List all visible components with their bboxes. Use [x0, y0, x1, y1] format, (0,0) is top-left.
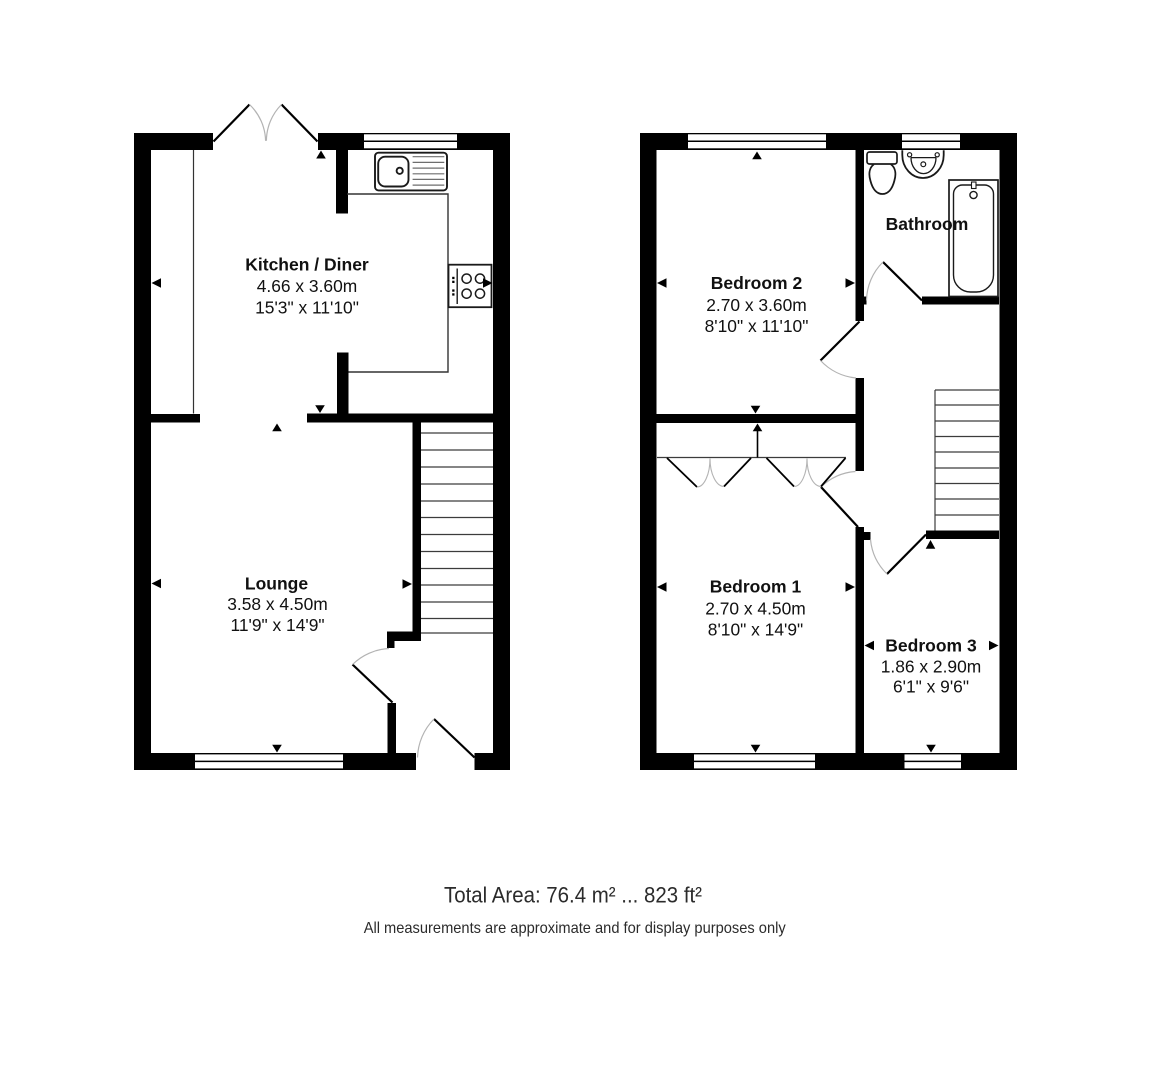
svg-text:Kitchen / Diner: Kitchen / Diner	[245, 255, 369, 275]
svg-text:All measurements are approxima: All measurements are approximate and for…	[364, 920, 786, 937]
svg-text:Bathroom: Bathroom	[886, 214, 969, 234]
svg-text:8'10" x 14'9": 8'10" x 14'9"	[708, 620, 803, 640]
svg-text:3.58 x 4.50m: 3.58 x 4.50m	[227, 594, 328, 614]
svg-text:Bedroom 1: Bedroom 1	[710, 577, 802, 597]
svg-text:Lounge: Lounge	[245, 573, 308, 593]
svg-text:1.86 x 2.90m: 1.86 x 2.90m	[881, 657, 982, 677]
svg-text:15'3" x 11'10": 15'3" x 11'10"	[255, 297, 359, 317]
svg-text:2.70 x 4.50m: 2.70 x 4.50m	[705, 599, 806, 619]
svg-text:11'9" x 14'9": 11'9" x 14'9"	[230, 615, 324, 635]
svg-text:Total Area: 76.4 m² ... 823 ft: Total Area: 76.4 m² ... 823 ft²	[444, 883, 702, 908]
svg-text:4.66 x 3.60m: 4.66 x 3.60m	[257, 276, 358, 296]
svg-text:6'1" x 9'6": 6'1" x 9'6"	[893, 677, 969, 697]
svg-text:Bedroom 2: Bedroom 2	[711, 273, 803, 293]
svg-text:Bedroom 3: Bedroom 3	[885, 635, 977, 655]
svg-text:2.70 x 3.60m: 2.70 x 3.60m	[706, 295, 807, 315]
svg-text:8'10" x 11'10": 8'10" x 11'10"	[705, 316, 809, 336]
